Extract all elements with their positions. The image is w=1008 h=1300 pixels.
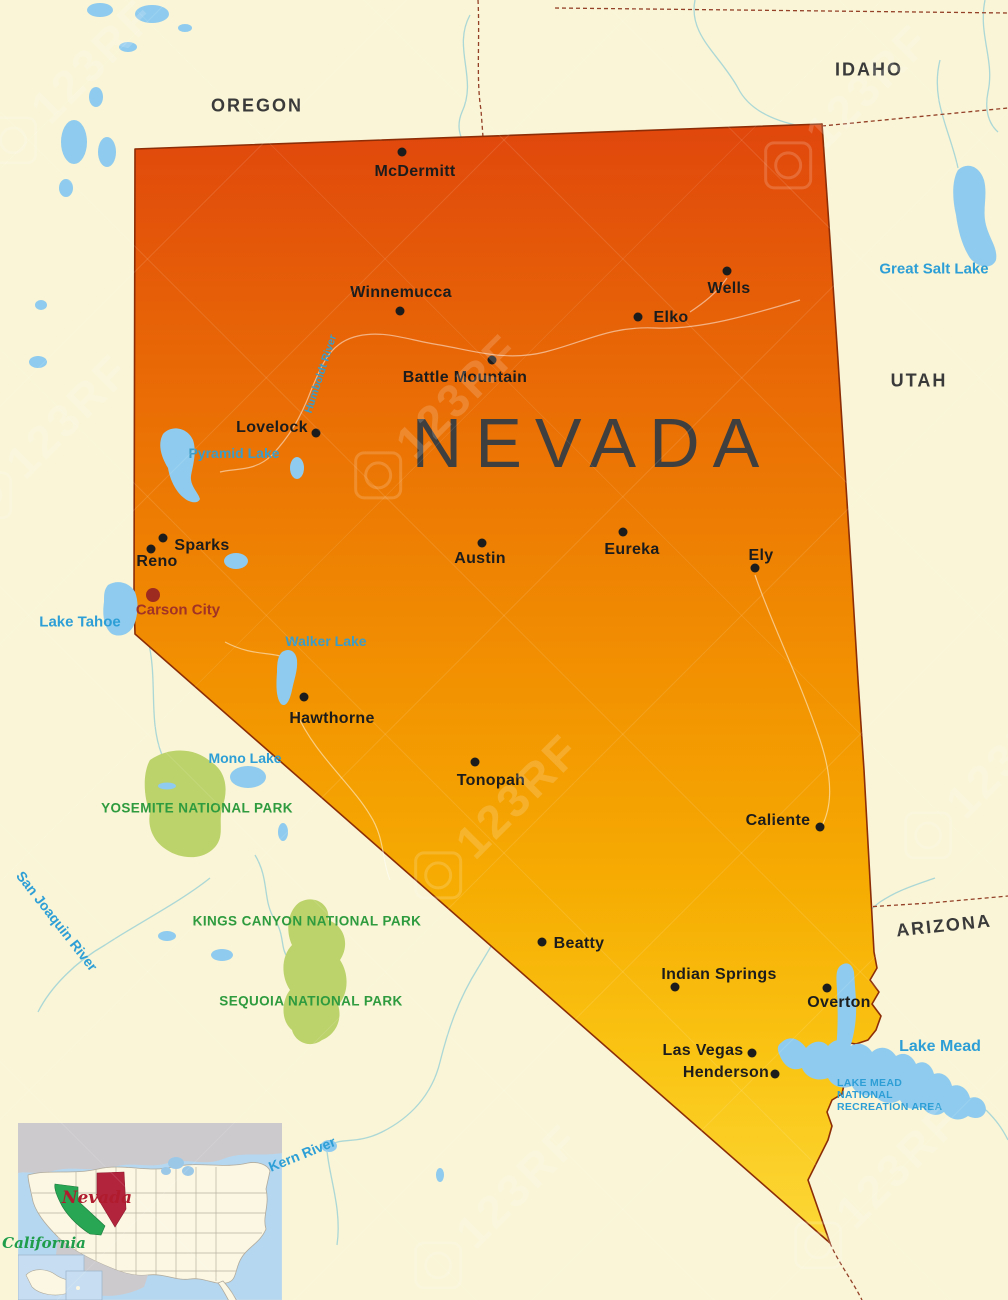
inset-nevada-label: Nevada (62, 1188, 132, 1208)
state-label-utah: UTAH (891, 371, 948, 392)
city-dot-indian-springs (671, 983, 680, 992)
city-dot-ely (751, 564, 760, 573)
sequoia-park-label: SEQUOIA NATIONAL PARK (219, 994, 402, 1009)
inset-hawaii-island (76, 1286, 80, 1290)
city-label-lovelock: Lovelock (236, 419, 308, 437)
city-label-overton: Overton (807, 994, 870, 1012)
state-label-oregon: OREGON (211, 96, 303, 117)
city-dot-reno (147, 545, 156, 554)
city-label-reno: Reno (136, 553, 177, 571)
city-dot-mcdermitt (398, 148, 407, 157)
nevada-title: NEVADA (412, 403, 773, 483)
city-dot-austin (478, 539, 487, 548)
lake-mead-nra-line1: LAKE MEAD (837, 1078, 902, 1090)
city-label-elko: Elko (654, 309, 689, 327)
city-label-battle-mountain: Battle Mountain (403, 369, 528, 387)
city-dot-sparks (159, 534, 168, 543)
city-label-ely: Ely (749, 547, 774, 565)
city-dot-las-vegas (748, 1049, 757, 1058)
lake-mead-nra-line3: RECREATION AREA (837, 1102, 942, 1114)
city-dot-wells (723, 267, 732, 276)
walker-lake-label: Walker Lake (285, 633, 366, 649)
great-salt-lake-label: Great Salt Lake (879, 261, 988, 278)
city-label-indian-springs: Indian Springs (661, 966, 776, 984)
pyramid-lake-label: Pyramid Lake (188, 445, 279, 461)
city-dot-beatty (538, 938, 547, 947)
yosemite-small-lake (158, 783, 176, 790)
city-dot-lovelock (312, 429, 321, 438)
kings-canyon-park-label: KINGS CANYON NATIONAL PARK (193, 914, 422, 929)
city-dot-elko (634, 313, 643, 322)
city-label-sparks: Sparks (174, 537, 229, 555)
city-label-caliente: Caliente (746, 812, 811, 830)
city-dot-battle-mountain (488, 356, 497, 365)
city-dot-overton (823, 984, 832, 993)
city-dot-winnemucca (396, 307, 405, 316)
yosemite-park-label: YOSEMITE NATIONAL PARK (101, 801, 293, 816)
city-dot-carson-city (146, 588, 160, 602)
city-dot-caliente (816, 823, 825, 832)
city-dot-tonopah (471, 758, 480, 767)
us-inset-map (18, 1123, 282, 1300)
inset-hawaii-box (66, 1271, 102, 1300)
lake-tahoe-label: Lake Tahoe (39, 614, 120, 631)
city-label-winnemucca: Winnemucca (350, 284, 452, 302)
city-dot-eureka (619, 528, 628, 537)
city-label-tonopah: Tonopah (457, 772, 525, 790)
lake-mead-label: Lake Mead (899, 1038, 981, 1056)
city-dot-henderson (771, 1070, 780, 1079)
city-label-carson-city: Carson City (136, 602, 220, 619)
inset-california-label: California (2, 1234, 86, 1252)
city-label-henderson: Henderson (683, 1064, 769, 1082)
state-label-idaho: IDAHO (835, 60, 903, 81)
nevada-map: OREGON IDAHO UTAH ARIZONA NEVADA McDermi… (0, 0, 1008, 1300)
mono-lake-shape (230, 766, 266, 788)
city-dot-hawthorne (300, 693, 309, 702)
city-label-las-vegas: Las Vegas (663, 1042, 744, 1060)
city-label-wells: Wells (708, 280, 751, 298)
lake-mead-nra-line2: NATIONAL (837, 1090, 893, 1102)
mono-lake-label: Mono Lake (208, 750, 281, 766)
city-label-austin: Austin (454, 550, 506, 568)
city-label-hawthorne: Hawthorne (289, 710, 374, 728)
city-label-eureka: Eureka (604, 541, 659, 559)
city-label-mcdermitt: McDermitt (375, 163, 456, 181)
city-label-beatty: Beatty (554, 935, 605, 953)
